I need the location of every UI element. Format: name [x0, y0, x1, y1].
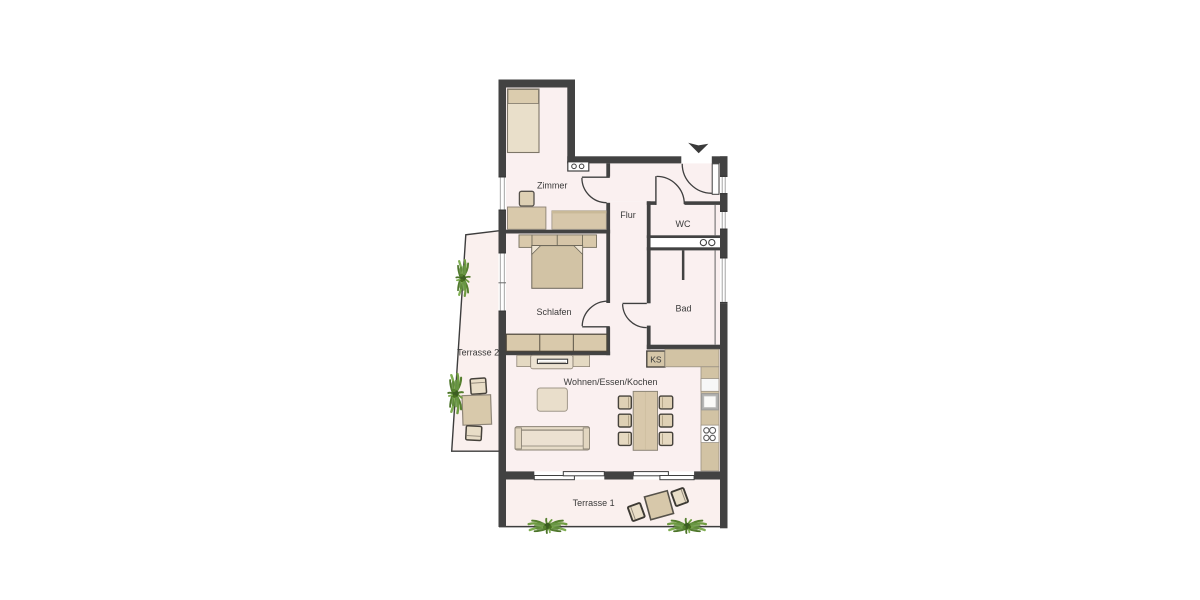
svg-text:Zimmer: Zimmer: [537, 180, 568, 190]
svg-text:Schlafen: Schlafen: [536, 307, 571, 317]
svg-text:Bad: Bad: [675, 303, 691, 313]
svg-text:Flur: Flur: [620, 210, 636, 220]
svg-text:KS: KS: [650, 355, 662, 365]
svg-text:WC: WC: [676, 219, 691, 229]
svg-text:Terrasse 1: Terrasse 1: [573, 498, 615, 508]
svg-text:Terrasse 2: Terrasse 2: [457, 348, 499, 358]
svg-text:Wohnen/Essen/Kochen: Wohnen/Essen/Kochen: [564, 377, 658, 387]
